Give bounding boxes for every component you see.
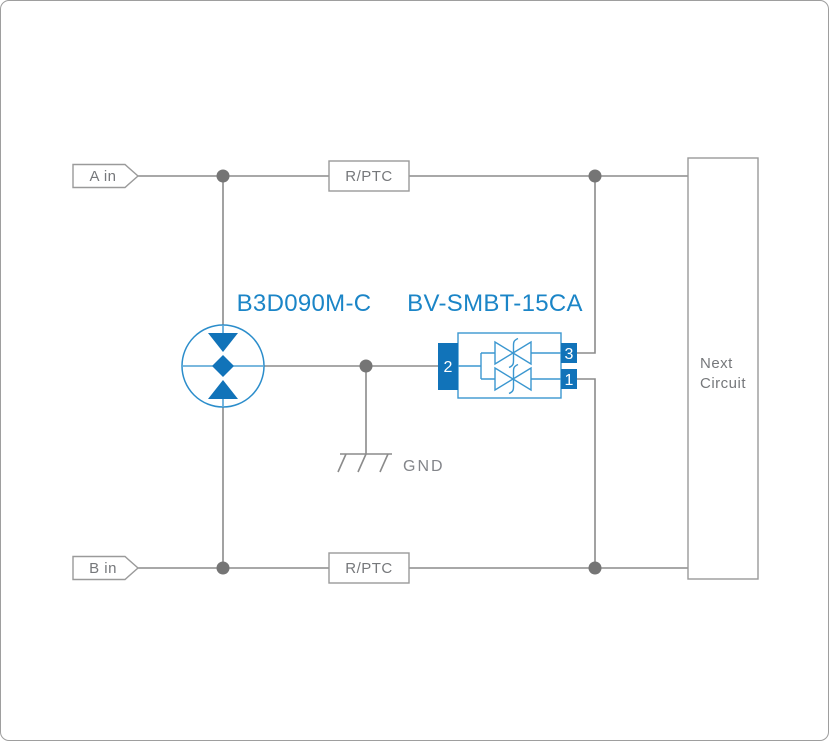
- next-circuit-label-line2: Circuit: [700, 375, 746, 392]
- rptc-bottom: R/PTC: [329, 553, 409, 583]
- diode-left-triangle: [495, 342, 513, 364]
- schematic-page: A in B in R/PTC R/PTC B3D090M-C BV-SMBT-…: [0, 0, 829, 741]
- input-b-label: B in: [89, 560, 117, 577]
- gas-discharge-tube-symbol: [182, 325, 264, 407]
- tvs-symbol: 2 3 1: [438, 333, 577, 398]
- rptc-top-label: R/PTC: [345, 168, 393, 185]
- gnd-label: GND: [403, 458, 445, 475]
- tvs-part-label: BV-SMBT-15CA: [407, 290, 583, 317]
- input-a-label: A in: [89, 168, 116, 185]
- gdt-part-label: B3D090M-C: [237, 290, 372, 317]
- gnd-symbol: GND: [338, 454, 445, 475]
- junction-dot-top-left: [217, 170, 230, 183]
- tvs-pin-3-number: 3: [565, 346, 574, 363]
- input-a-flag: A in: [73, 165, 138, 188]
- wire-pin3-to-top: [577, 176, 595, 353]
- tvs-diode-bottom-icon: [495, 365, 531, 394]
- protection-circuit-diagram: A in B in R/PTC R/PTC B3D090M-C BV-SMBT-…: [1, 1, 829, 741]
- tvs-pin-1-number: 1: [565, 372, 574, 389]
- diode-right-triangle: [513, 342, 531, 364]
- junction-dot-bottom-left: [217, 562, 230, 575]
- wire-pin1-to-bottom: [577, 379, 595, 568]
- tvs-pin-2-number: 2: [444, 359, 453, 376]
- junction-dot-top-right: [589, 170, 602, 183]
- tvs-diode-top-icon: [495, 339, 531, 368]
- junction-dot-middle: [360, 360, 373, 373]
- rptc-top: R/PTC: [329, 161, 409, 191]
- junction-dot-bottom-right: [589, 562, 602, 575]
- next-circuit-block: Next Circuit: [688, 158, 758, 579]
- next-circuit-label-line1: Next: [700, 355, 733, 372]
- rptc-bottom-label: R/PTC: [345, 560, 393, 577]
- input-b-flag: B in: [73, 557, 138, 580]
- gnd-hatches: [338, 454, 388, 472]
